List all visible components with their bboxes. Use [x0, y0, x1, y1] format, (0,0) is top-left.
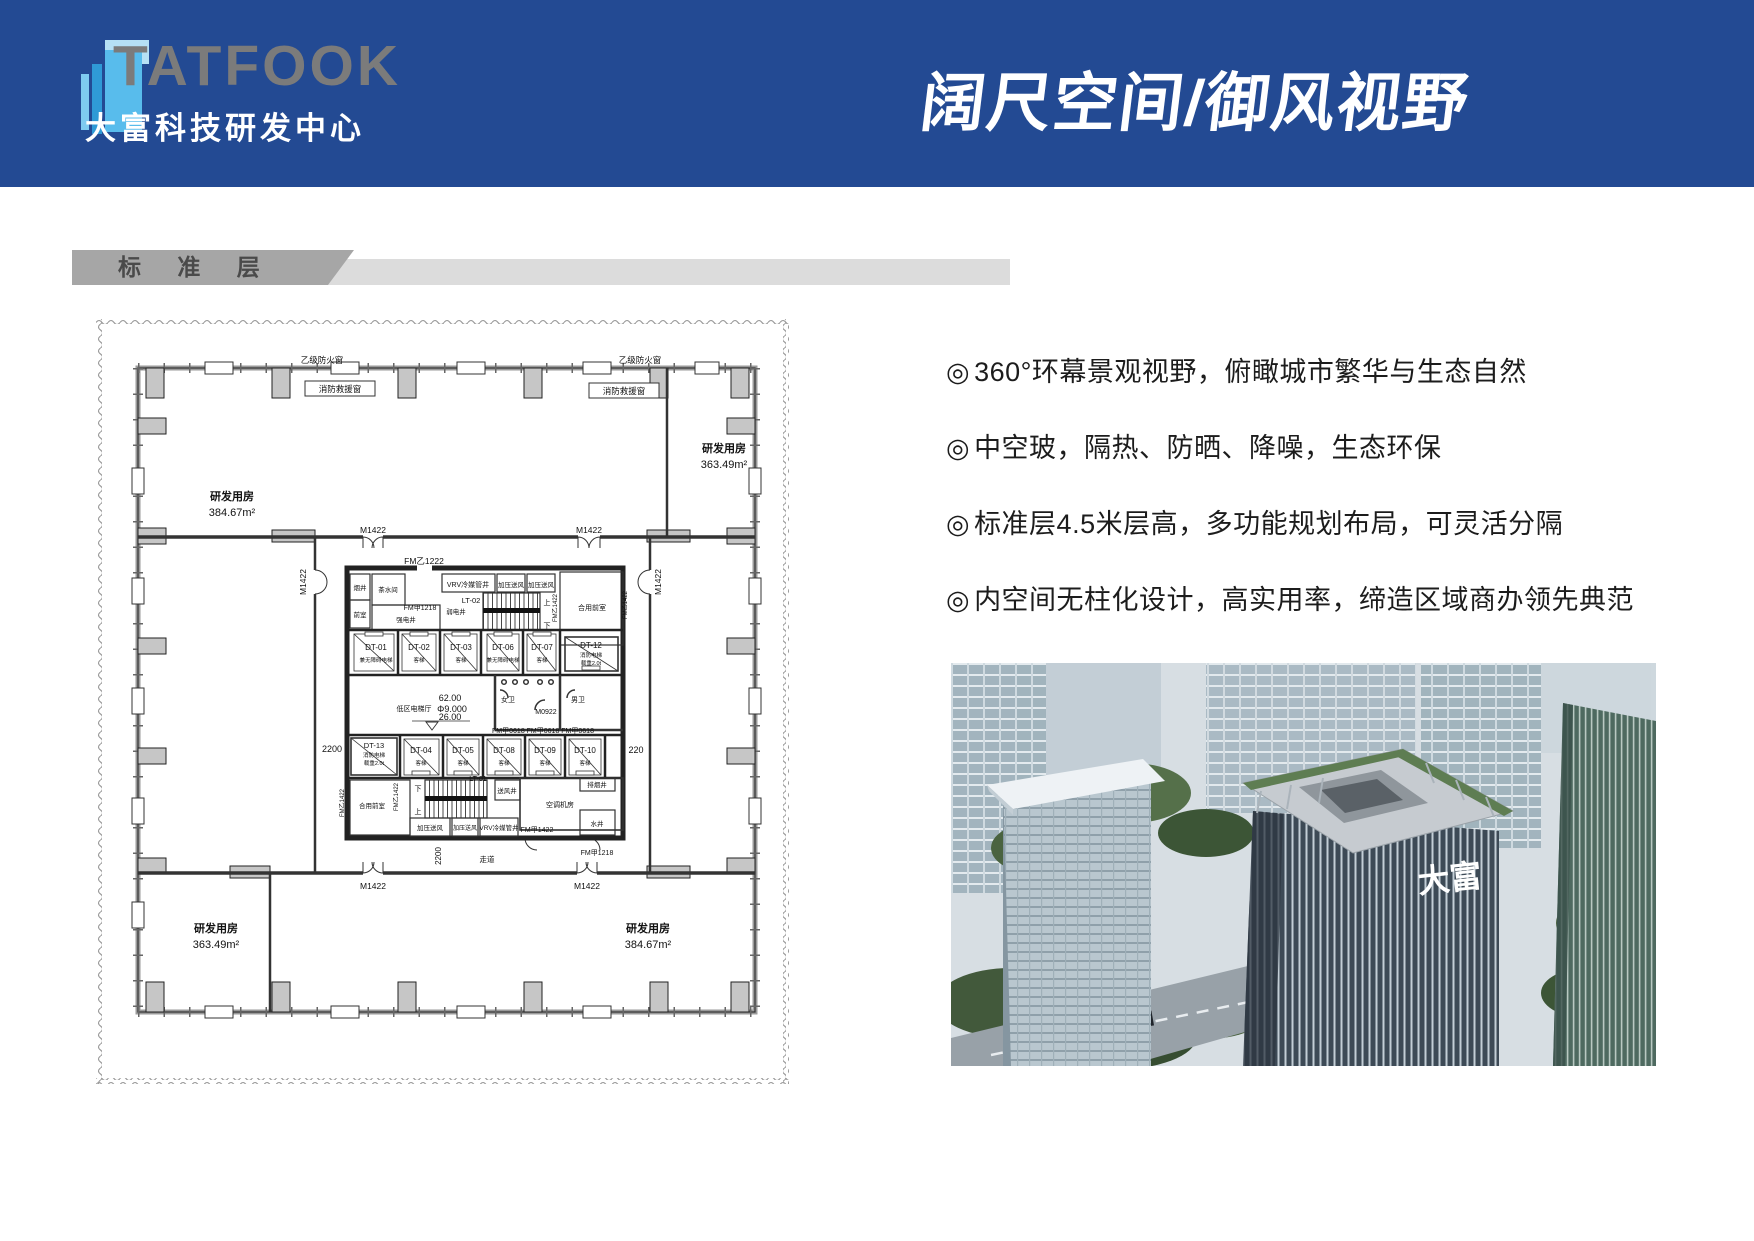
- logo-text: TATFOOK: [113, 38, 401, 95]
- brochure-page: TATFOOK 大富科技研发中心 阔尺空间/御风视野 标 准 层: [0, 0, 1754, 1241]
- section-banner: 标 准 层: [72, 250, 354, 285]
- svg-text:LT-02: LT-02: [462, 596, 481, 605]
- svg-text:VRV冷媒管井: VRV冷媒管井: [479, 823, 519, 832]
- bullet-icon: ◎: [946, 585, 970, 615]
- svg-text:水井: 水井: [591, 819, 605, 828]
- svg-text:兼无障碍电梯: 兼无障碍电梯: [359, 656, 393, 664]
- svg-text:FM乙1422: FM乙1422: [552, 593, 559, 622]
- page-title: 阔尺空间/御风视野: [917, 52, 1476, 144]
- svg-text:M1422: M1422: [576, 525, 602, 535]
- svg-text:前室: 前室: [354, 610, 368, 619]
- feature-item: ◎标准层4.5米层高，多功能规划布局，可灵活分隔: [946, 502, 1466, 541]
- svg-text:客梯: 客梯: [455, 656, 467, 664]
- svg-text:DT-09: DT-09: [534, 746, 556, 755]
- svg-text:加压送风: 加压送风: [417, 823, 444, 832]
- svg-text:DT-08: DT-08: [493, 746, 515, 755]
- svg-text:2200: 2200: [322, 744, 342, 754]
- svg-text:消防救援窗: 消防救援窗: [603, 386, 646, 396]
- building-rendering: 大富: [951, 663, 1656, 1066]
- svg-text:消防电梯: 消防电梯: [580, 651, 603, 659]
- building-sign-text: 大富: [1416, 857, 1483, 899]
- svg-text:女卫: 女卫: [501, 695, 515, 704]
- svg-text:363.49m²: 363.49m²: [701, 459, 748, 471]
- svg-text:M0922: M0922: [535, 709, 557, 716]
- svg-text:男卫: 男卫: [571, 696, 585, 704]
- svg-text:M1422: M1422: [574, 881, 600, 891]
- svg-text:M1422: M1422: [360, 881, 386, 891]
- bullet-icon: ◎: [946, 509, 970, 539]
- svg-text:DT-05: DT-05: [452, 746, 474, 755]
- section-label: 标 准 层: [72, 250, 354, 285]
- svg-text:LT-01: LT-01: [469, 776, 486, 783]
- svg-text:VRV冷媒管井: VRV冷媒管井: [447, 580, 489, 589]
- section-banner-strip: [300, 259, 1010, 285]
- svg-text:乙级防火窗: 乙级防火窗: [619, 355, 662, 365]
- svg-text:载重2.0t: 载重2.0t: [364, 759, 385, 767]
- svg-text:排烟井: 排烟井: [587, 780, 607, 789]
- svg-text:上: 上: [544, 598, 551, 607]
- svg-text:客梯: 客梯: [536, 656, 548, 664]
- svg-text:FM甲1218: FM甲1218: [404, 604, 437, 612]
- svg-text:DT-03: DT-03: [450, 643, 472, 652]
- svg-text:研发用房: 研发用房: [626, 921, 670, 935]
- bullet-icon: ◎: [946, 433, 970, 463]
- svg-text:合用前室: 合用前室: [578, 603, 606, 612]
- svg-text:DT-01: DT-01: [365, 643, 387, 652]
- svg-text:客梯: 客梯: [413, 656, 425, 664]
- svg-text:2200: 2200: [434, 847, 443, 865]
- svg-text:消防救援窗: 消防救援窗: [319, 384, 362, 394]
- svg-text:上: 上: [415, 807, 422, 816]
- svg-text:26.00: 26.00: [439, 712, 462, 722]
- svg-text:DT-04: DT-04: [410, 746, 432, 755]
- svg-text:FM乙1222: FM乙1222: [404, 556, 444, 566]
- svg-text:茶水间: 茶水间: [378, 585, 398, 594]
- svg-text:DT-07: DT-07: [531, 643, 553, 652]
- svg-text:走道: 走道: [480, 854, 495, 864]
- bullet-icon: ◎: [946, 357, 970, 387]
- svg-text:空调机房: 空调机房: [546, 800, 574, 809]
- svg-text:DT-06: DT-06: [492, 643, 514, 652]
- svg-text:DT-12: DT-12: [580, 641, 602, 650]
- svg-text:客梯: 客梯: [457, 759, 469, 767]
- floor-plan: 乙级防火窗 乙级防火窗 消防救援窗 消防救援窗 研发用房 384.67m² 研发…: [95, 318, 790, 1085]
- svg-text:DT-10: DT-10: [574, 746, 596, 755]
- svg-text:M1422: M1422: [653, 569, 663, 595]
- svg-text:低区电梯厅: 低区电梯厅: [397, 704, 432, 713]
- feature-item: ◎中空玻，隔热、防晒、降噪，生态环保: [946, 426, 1466, 465]
- logo: TATFOOK 大富科技研发中心: [85, 38, 401, 148]
- header-bar: TATFOOK 大富科技研发中心 阔尺空间/御风视野: [0, 0, 1754, 187]
- svg-text:加压送风: 加压送风: [498, 580, 525, 589]
- svg-text:DT-02: DT-02: [408, 643, 430, 652]
- svg-text:62.00: 62.00: [439, 693, 462, 703]
- svg-text:FM乙1422: FM乙1422: [622, 590, 629, 619]
- feature-list: ◎360°环幕景观视野，俯瞰城市繁华与生态自然 ◎中空玻，隔热、防晒、降噪，生态…: [946, 350, 1466, 654]
- svg-text:研发用房: 研发用房: [210, 489, 254, 503]
- svg-text:M1422: M1422: [298, 569, 308, 595]
- svg-text:研发用房: 研发用房: [702, 441, 746, 455]
- right-tower: [1553, 703, 1656, 1066]
- svg-text:FM甲1218: FM甲1218: [581, 849, 614, 857]
- svg-text:研发用房: 研发用房: [194, 921, 238, 935]
- left-tower: [987, 759, 1165, 1066]
- svg-text:强电井: 强电井: [396, 615, 416, 624]
- svg-text:加压送风: 加压送风: [453, 824, 477, 832]
- svg-text:384.67m²: 384.67m²: [625, 939, 672, 951]
- feature-item: ◎内空间无柱化设计，高实用率，缔造区域商办领先典范: [946, 578, 1466, 617]
- svg-text:下: 下: [415, 785, 422, 793]
- svg-text:DT-13: DT-13: [364, 741, 384, 750]
- svg-text:客梯: 客梯: [415, 759, 427, 767]
- svg-text:客梯: 客梯: [579, 759, 591, 767]
- logo-subtitle: 大富科技研发中心: [85, 103, 401, 148]
- svg-text:FM甲1422: FM甲1422: [521, 826, 554, 834]
- svg-text:220: 220: [628, 745, 643, 755]
- svg-text:载重2.0t: 载重2.0t: [581, 659, 602, 667]
- svg-text:弱电井: 弱电井: [446, 607, 466, 616]
- svg-text:下: 下: [544, 622, 551, 630]
- svg-text:FM甲0618 FM甲0618 FM甲0618: FM甲0618 FM甲0618 FM甲0618: [492, 727, 594, 735]
- svg-text:烟井: 烟井: [354, 583, 368, 592]
- svg-text:客梯: 客梯: [498, 759, 510, 767]
- feature-item: ◎360°环幕景观视野，俯瞰城市繁华与生态自然: [946, 350, 1466, 389]
- svg-text:乙级防火窗: 乙级防火窗: [301, 355, 344, 365]
- svg-text:M1422: M1422: [360, 525, 386, 535]
- svg-text:送风井: 送风井: [497, 786, 517, 795]
- svg-text:FM乙1422: FM乙1422: [339, 788, 346, 817]
- svg-text:合用前室: 合用前室: [359, 801, 386, 810]
- svg-text:消防电梯: 消防电梯: [363, 751, 386, 759]
- svg-text:客梯: 客梯: [539, 759, 551, 767]
- svg-text:363.49m²: 363.49m²: [193, 939, 240, 951]
- svg-text:384.67m²: 384.67m²: [209, 507, 256, 519]
- main-tower: 大富: [1243, 749, 1513, 1066]
- svg-text:FM乙1422: FM乙1422: [393, 782, 400, 811]
- svg-text:兼无障碍电梯: 兼无障碍电梯: [486, 656, 520, 664]
- svg-text:加压送风: 加压送风: [528, 580, 555, 589]
